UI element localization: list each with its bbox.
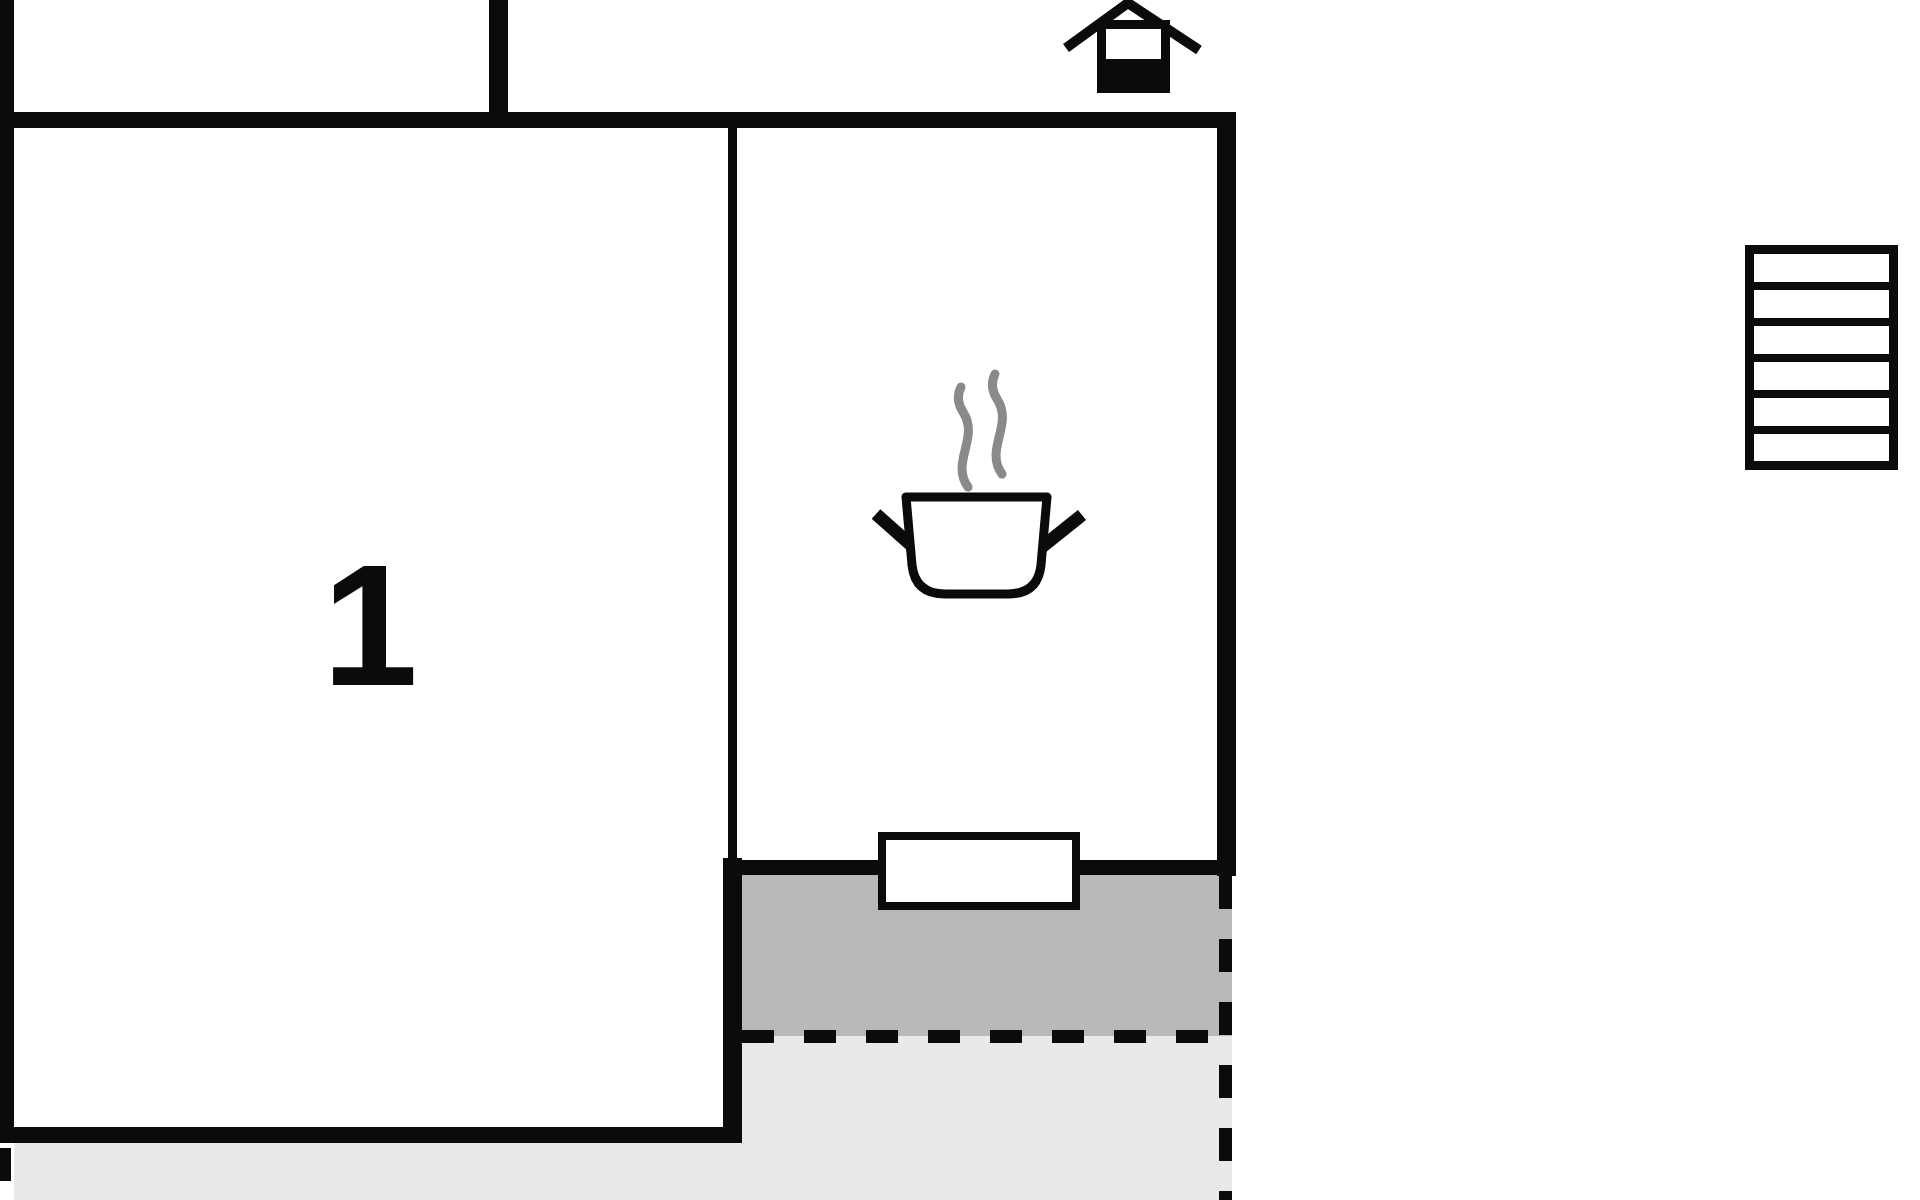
floor-plan: 1 bbox=[0, 0, 1920, 1200]
steam-icon bbox=[958, 374, 1002, 487]
plan-icons-layer bbox=[0, 0, 1920, 1200]
fireplace-icon bbox=[1066, 3, 1199, 93]
cooking-pot-icon bbox=[876, 497, 1082, 594]
room-label: 1 bbox=[290, 550, 450, 700]
